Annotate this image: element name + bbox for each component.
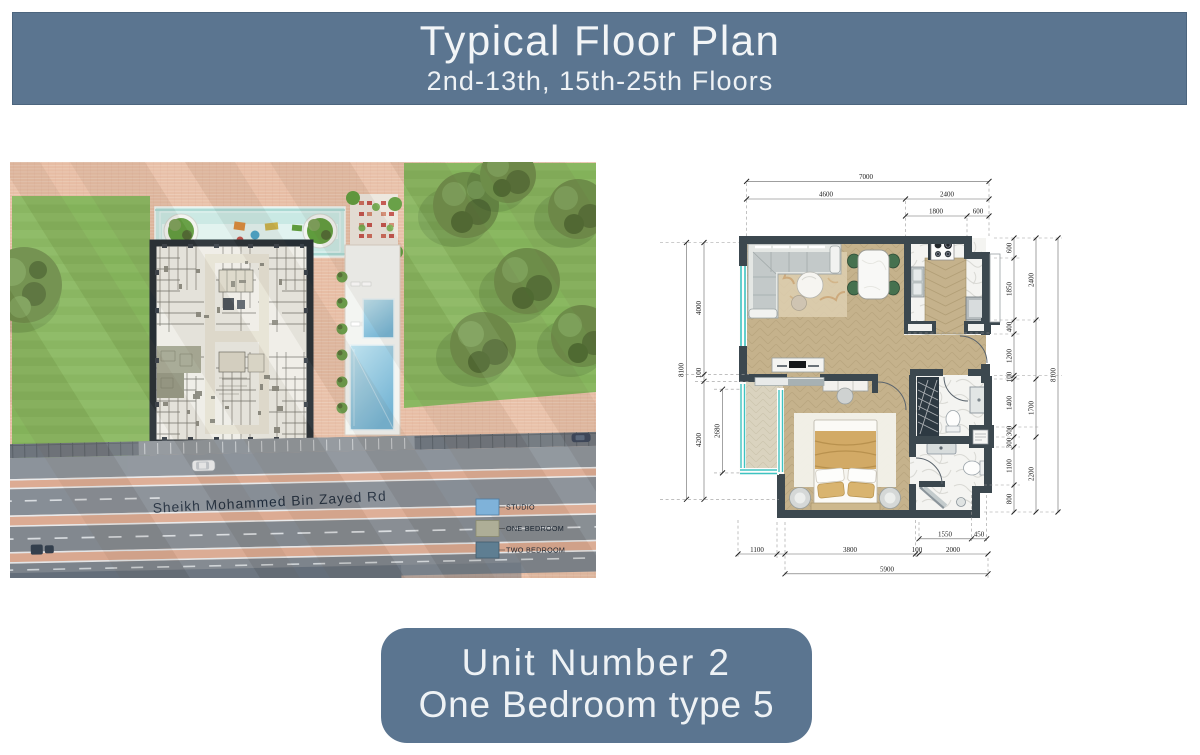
svg-text:2400: 2400 xyxy=(940,190,955,198)
svg-text:450: 450 xyxy=(974,531,985,539)
svg-text:1100: 1100 xyxy=(750,546,764,554)
svg-text:400: 400 xyxy=(1006,321,1014,332)
svg-text:4200: 4200 xyxy=(695,433,703,448)
svg-text:TWO BEDROOM: TWO BEDROOM xyxy=(506,546,565,555)
svg-text:600: 600 xyxy=(1006,242,1014,253)
svg-text:1200: 1200 xyxy=(1006,349,1014,364)
svg-text:100: 100 xyxy=(912,546,923,554)
svg-text:2000: 2000 xyxy=(946,546,961,554)
svg-text:ONE BEDROOM: ONE BEDROOM xyxy=(506,524,564,533)
svg-text:8100: 8100 xyxy=(1050,368,1058,383)
svg-text:1850: 1850 xyxy=(1006,282,1014,297)
svg-text:5900: 5900 xyxy=(880,566,895,574)
svg-text:1100: 1100 xyxy=(1006,459,1014,473)
svg-text:2680: 2680 xyxy=(714,424,722,439)
svg-text:300: 300 xyxy=(1006,425,1014,436)
svg-text:4000: 4000 xyxy=(695,301,703,316)
svg-text:1800: 1800 xyxy=(929,207,944,215)
svg-text:800: 800 xyxy=(1006,493,1014,504)
svg-text:1700: 1700 xyxy=(1028,401,1036,416)
svg-text:300: 300 xyxy=(1006,437,1014,448)
svg-text:2400: 2400 xyxy=(1028,273,1036,288)
svg-text:1550: 1550 xyxy=(938,531,953,539)
svg-text:4600: 4600 xyxy=(819,190,834,198)
svg-text:600: 600 xyxy=(973,207,984,215)
svg-text:2200: 2200 xyxy=(1028,467,1036,482)
svg-text:3800: 3800 xyxy=(843,546,858,554)
svg-text:100: 100 xyxy=(1006,371,1014,382)
svg-text:7000: 7000 xyxy=(859,173,874,181)
svg-text:1400: 1400 xyxy=(1006,396,1014,411)
svg-text:STUDIO: STUDIO xyxy=(506,503,535,512)
svg-text:100: 100 xyxy=(695,367,703,378)
svg-text:8100: 8100 xyxy=(678,363,686,378)
